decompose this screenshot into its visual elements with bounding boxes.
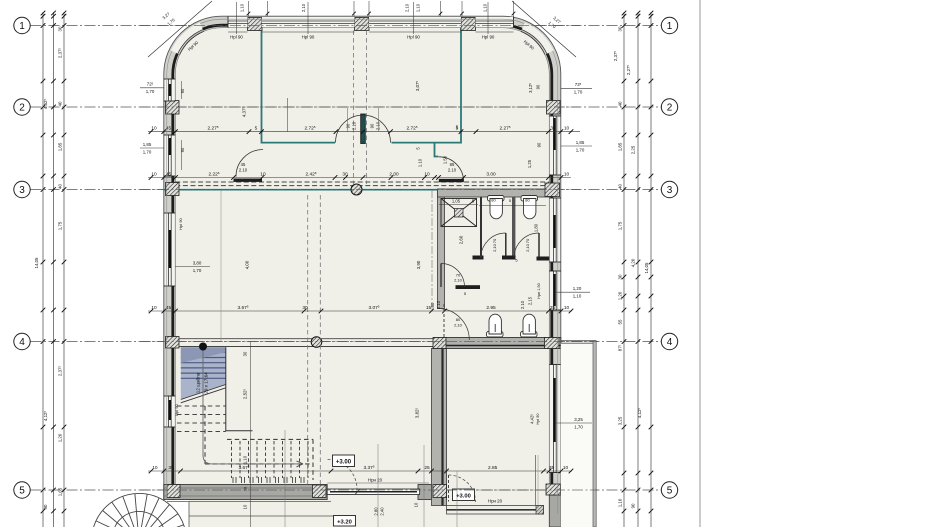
svg-text:90: 90 (537, 142, 542, 147)
svg-text:2,10: 2,10 (454, 323, 463, 328)
svg-text:1,85: 1,85 (58, 142, 63, 151)
svg-text:1,10: 1,10 (483, 3, 488, 12)
svg-text:12 щабла: 12 щабла (196, 372, 201, 393)
svg-text:70: 70 (525, 238, 530, 243)
svg-text:2.10: 2.10 (448, 168, 457, 173)
svg-text:1,70: 1,70 (574, 90, 583, 95)
svg-text:Hpl 90: Hpl 90 (302, 35, 315, 40)
svg-text:725: 725 (147, 81, 154, 86)
svg-text:30: 30 (58, 26, 63, 31)
svg-text:1,10: 1,10 (240, 3, 245, 12)
svg-text:1,80: 1,80 (534, 223, 539, 232)
svg-text:1,75: 1,75 (58, 221, 63, 230)
svg-text:2: 2 (667, 103, 673, 114)
svg-text:1.50: 1.50 (443, 155, 448, 164)
svg-text:1,70: 1,70 (166, 17, 176, 27)
svg-text:30: 30 (342, 171, 348, 177)
svg-text:2,375: 2,375 (57, 366, 62, 377)
svg-text:1,10: 1,10 (243, 455, 248, 464)
svg-text:1,75: 1,75 (618, 221, 623, 230)
svg-text:1,20: 1,20 (573, 286, 582, 291)
svg-text:10: 10 (564, 125, 570, 131)
svg-text:30: 30 (243, 351, 248, 356)
svg-text:35: 35 (549, 465, 555, 471)
svg-text:2,10: 2,10 (301, 3, 306, 12)
svg-text:10: 10 (414, 502, 419, 507)
svg-text:+3.20: +3.20 (337, 520, 352, 526)
svg-text:90: 90 (346, 123, 351, 128)
svg-text:4,00: 4,00 (244, 260, 249, 269)
svg-text:Hpl 90: Hpl 90 (178, 217, 183, 229)
svg-text:Hpl 90: Hpl 90 (230, 35, 243, 40)
svg-text:1,70: 1,70 (146, 89, 155, 94)
svg-text:35: 35 (168, 465, 174, 471)
svg-text:2.10: 2.10 (239, 168, 248, 173)
svg-text:70: 70 (492, 238, 497, 243)
svg-text:1,70: 1,70 (193, 268, 202, 273)
svg-text:2,10: 2,10 (405, 3, 410, 12)
svg-text:3: 3 (19, 185, 25, 196)
svg-text:+3.00: +3.00 (456, 494, 471, 500)
svg-text:35: 35 (550, 305, 556, 311)
svg-text:3,80: 3,80 (193, 260, 202, 265)
svg-text:4: 4 (667, 337, 673, 348)
svg-text:10: 10 (151, 171, 157, 177)
svg-text:1,25: 1,25 (527, 159, 532, 168)
svg-text:40: 40 (58, 101, 63, 106)
svg-text:1,20: 1,20 (58, 433, 63, 442)
svg-text:30: 30 (618, 26, 623, 31)
svg-text:30: 30 (243, 486, 248, 491)
svg-text:5: 5 (667, 486, 673, 497)
svg-text:14,05: 14,05 (644, 262, 649, 274)
svg-text:Hpн 20: Hpн 20 (368, 478, 383, 483)
svg-text:10: 10 (564, 171, 570, 177)
svg-text:2.95: 2.95 (486, 305, 496, 311)
svg-text:35: 35 (550, 125, 556, 131)
svg-text:2.10: 2.10 (520, 300, 525, 309)
svg-text:2,10: 2,10 (492, 243, 497, 252)
svg-text:4,125: 4,125 (637, 408, 642, 419)
svg-text:2,10: 2,10 (454, 278, 463, 283)
svg-text:3.00: 3.00 (486, 171, 496, 177)
svg-text:4,20: 4,20 (631, 258, 636, 267)
svg-text:90: 90 (370, 123, 375, 128)
svg-text:2.00: 2.00 (389, 171, 399, 177)
svg-text:90: 90 (43, 504, 48, 509)
svg-text:2.10: 2.10 (436, 300, 441, 309)
svg-text:Hpн 1,50: Hpн 1,50 (537, 283, 541, 298)
svg-text:2,375: 2,375 (57, 48, 62, 59)
svg-text:55: 55 (618, 319, 623, 324)
svg-text:+3.00: +3.00 (336, 460, 352, 466)
svg-text:3,25: 3,25 (574, 417, 583, 422)
svg-text:2,10: 2,10 (525, 243, 530, 252)
svg-text:1,10: 1,10 (416, 3, 421, 12)
svg-text:10: 10 (564, 305, 570, 311)
svg-text:2,25: 2,25 (631, 145, 636, 154)
svg-text:1,10: 1,10 (573, 294, 582, 299)
svg-text:10: 10 (260, 171, 266, 177)
svg-text:4,525: 4,525 (43, 99, 48, 110)
svg-text:2,275: 2,275 (626, 65, 631, 76)
svg-text:90: 90 (631, 503, 636, 508)
svg-text:90: 90 (536, 84, 541, 89)
svg-text:1,85: 1,85 (618, 142, 623, 151)
svg-text:10: 10 (151, 125, 157, 131)
svg-text:725: 725 (575, 82, 582, 87)
svg-text:14,05: 14,05 (34, 257, 39, 269)
svg-text:80: 80 (525, 198, 530, 203)
svg-text:1,85: 1,85 (143, 142, 152, 147)
svg-text:1,70: 1,70 (576, 147, 585, 152)
svg-text:29 x 17,64: 29 x 17,64 (204, 372, 209, 394)
svg-text:Hpl 90: Hpl 90 (536, 414, 540, 425)
svg-text:1,85: 1,85 (576, 140, 585, 145)
svg-text:25: 25 (424, 465, 430, 471)
svg-text:2.10: 2.10 (352, 121, 357, 130)
svg-text:1,70: 1,70 (574, 424, 583, 429)
svg-text:4,125: 4,125 (43, 411, 48, 422)
svg-text:10: 10 (563, 465, 569, 471)
svg-text:90: 90 (180, 147, 185, 152)
svg-text:45: 45 (241, 162, 246, 167)
svg-text:1,65: 1,65 (58, 487, 63, 496)
svg-text:2,60: 2,60 (459, 235, 464, 244)
svg-text:Hpн 20: Hpн 20 (488, 499, 503, 504)
svg-text:2,15: 2,15 (528, 296, 533, 305)
svg-text:30: 30 (618, 274, 623, 279)
svg-text:3,90: 3,90 (416, 260, 421, 269)
svg-text:1,20: 1,20 (618, 291, 623, 300)
svg-text:1: 1 (19, 21, 25, 32)
svg-text:1: 1 (667, 21, 673, 32)
svg-text:1,70: 1,70 (143, 149, 152, 154)
svg-text:2,40: 2,40 (380, 507, 385, 516)
svg-text:875: 875 (617, 344, 622, 351)
svg-text:10: 10 (152, 465, 158, 471)
svg-text:1,10: 1,10 (618, 498, 623, 507)
svg-text:2,375: 2,375 (613, 51, 618, 62)
svg-text:3,25: 3,25 (618, 416, 623, 425)
svg-text:10: 10 (243, 504, 248, 509)
svg-text:4: 4 (19, 337, 25, 348)
svg-text:80: 80 (456, 317, 461, 322)
svg-text:2: 2 (19, 103, 25, 114)
svg-text:3: 3 (667, 185, 673, 196)
svg-text:40: 40 (58, 184, 63, 189)
svg-text:1,05: 1,05 (452, 199, 461, 204)
svg-text:Hpl 90: Hpl 90 (482, 35, 495, 40)
svg-text:30: 30 (302, 305, 308, 311)
svg-text:2.85: 2.85 (488, 465, 498, 471)
svg-text:40: 40 (618, 101, 623, 106)
svg-text:Hpl 90: Hpl 90 (174, 403, 179, 415)
svg-text:40: 40 (618, 184, 623, 189)
svg-text:80: 80 (430, 302, 435, 307)
svg-text:5: 5 (19, 486, 25, 497)
svg-text:85: 85 (450, 162, 455, 167)
svg-text:80: 80 (491, 198, 496, 203)
svg-text:Hpl 90: Hpl 90 (407, 35, 420, 40)
svg-text:5: 5 (255, 125, 258, 131)
svg-text:90: 90 (180, 88, 185, 93)
svg-text:2.10: 2.10 (376, 121, 381, 130)
svg-text:10: 10 (424, 171, 430, 177)
svg-text:10: 10 (151, 305, 157, 311)
svg-text:1.10: 1.10 (418, 158, 423, 167)
